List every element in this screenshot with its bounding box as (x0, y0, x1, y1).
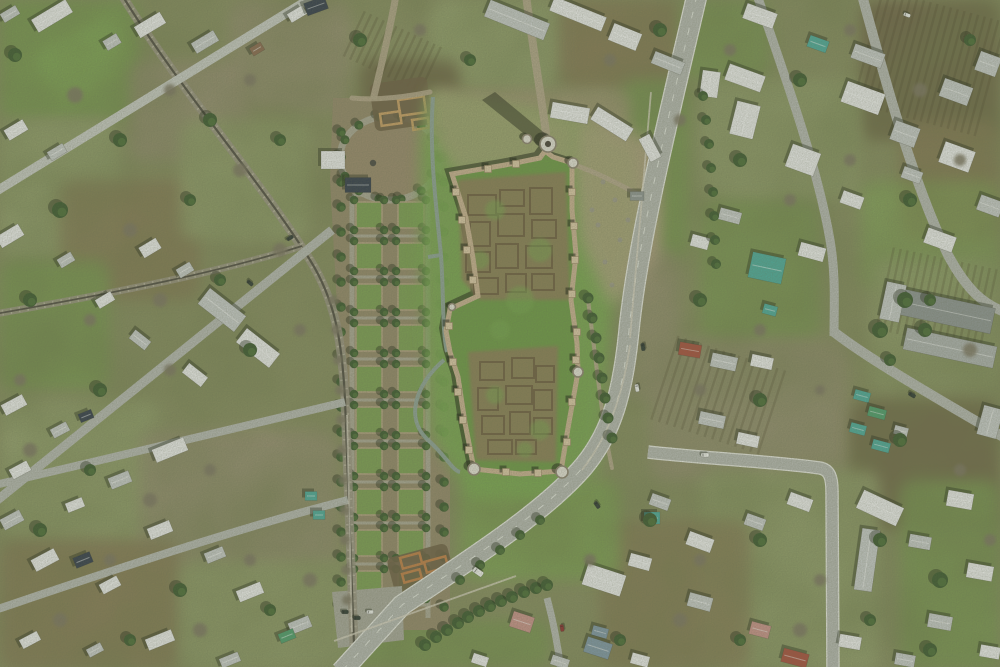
photo-grain (0, 0, 1000, 667)
aerial-photo-of-fortress-town (0, 0, 1000, 667)
aerial-photo-stage (0, 0, 1000, 667)
